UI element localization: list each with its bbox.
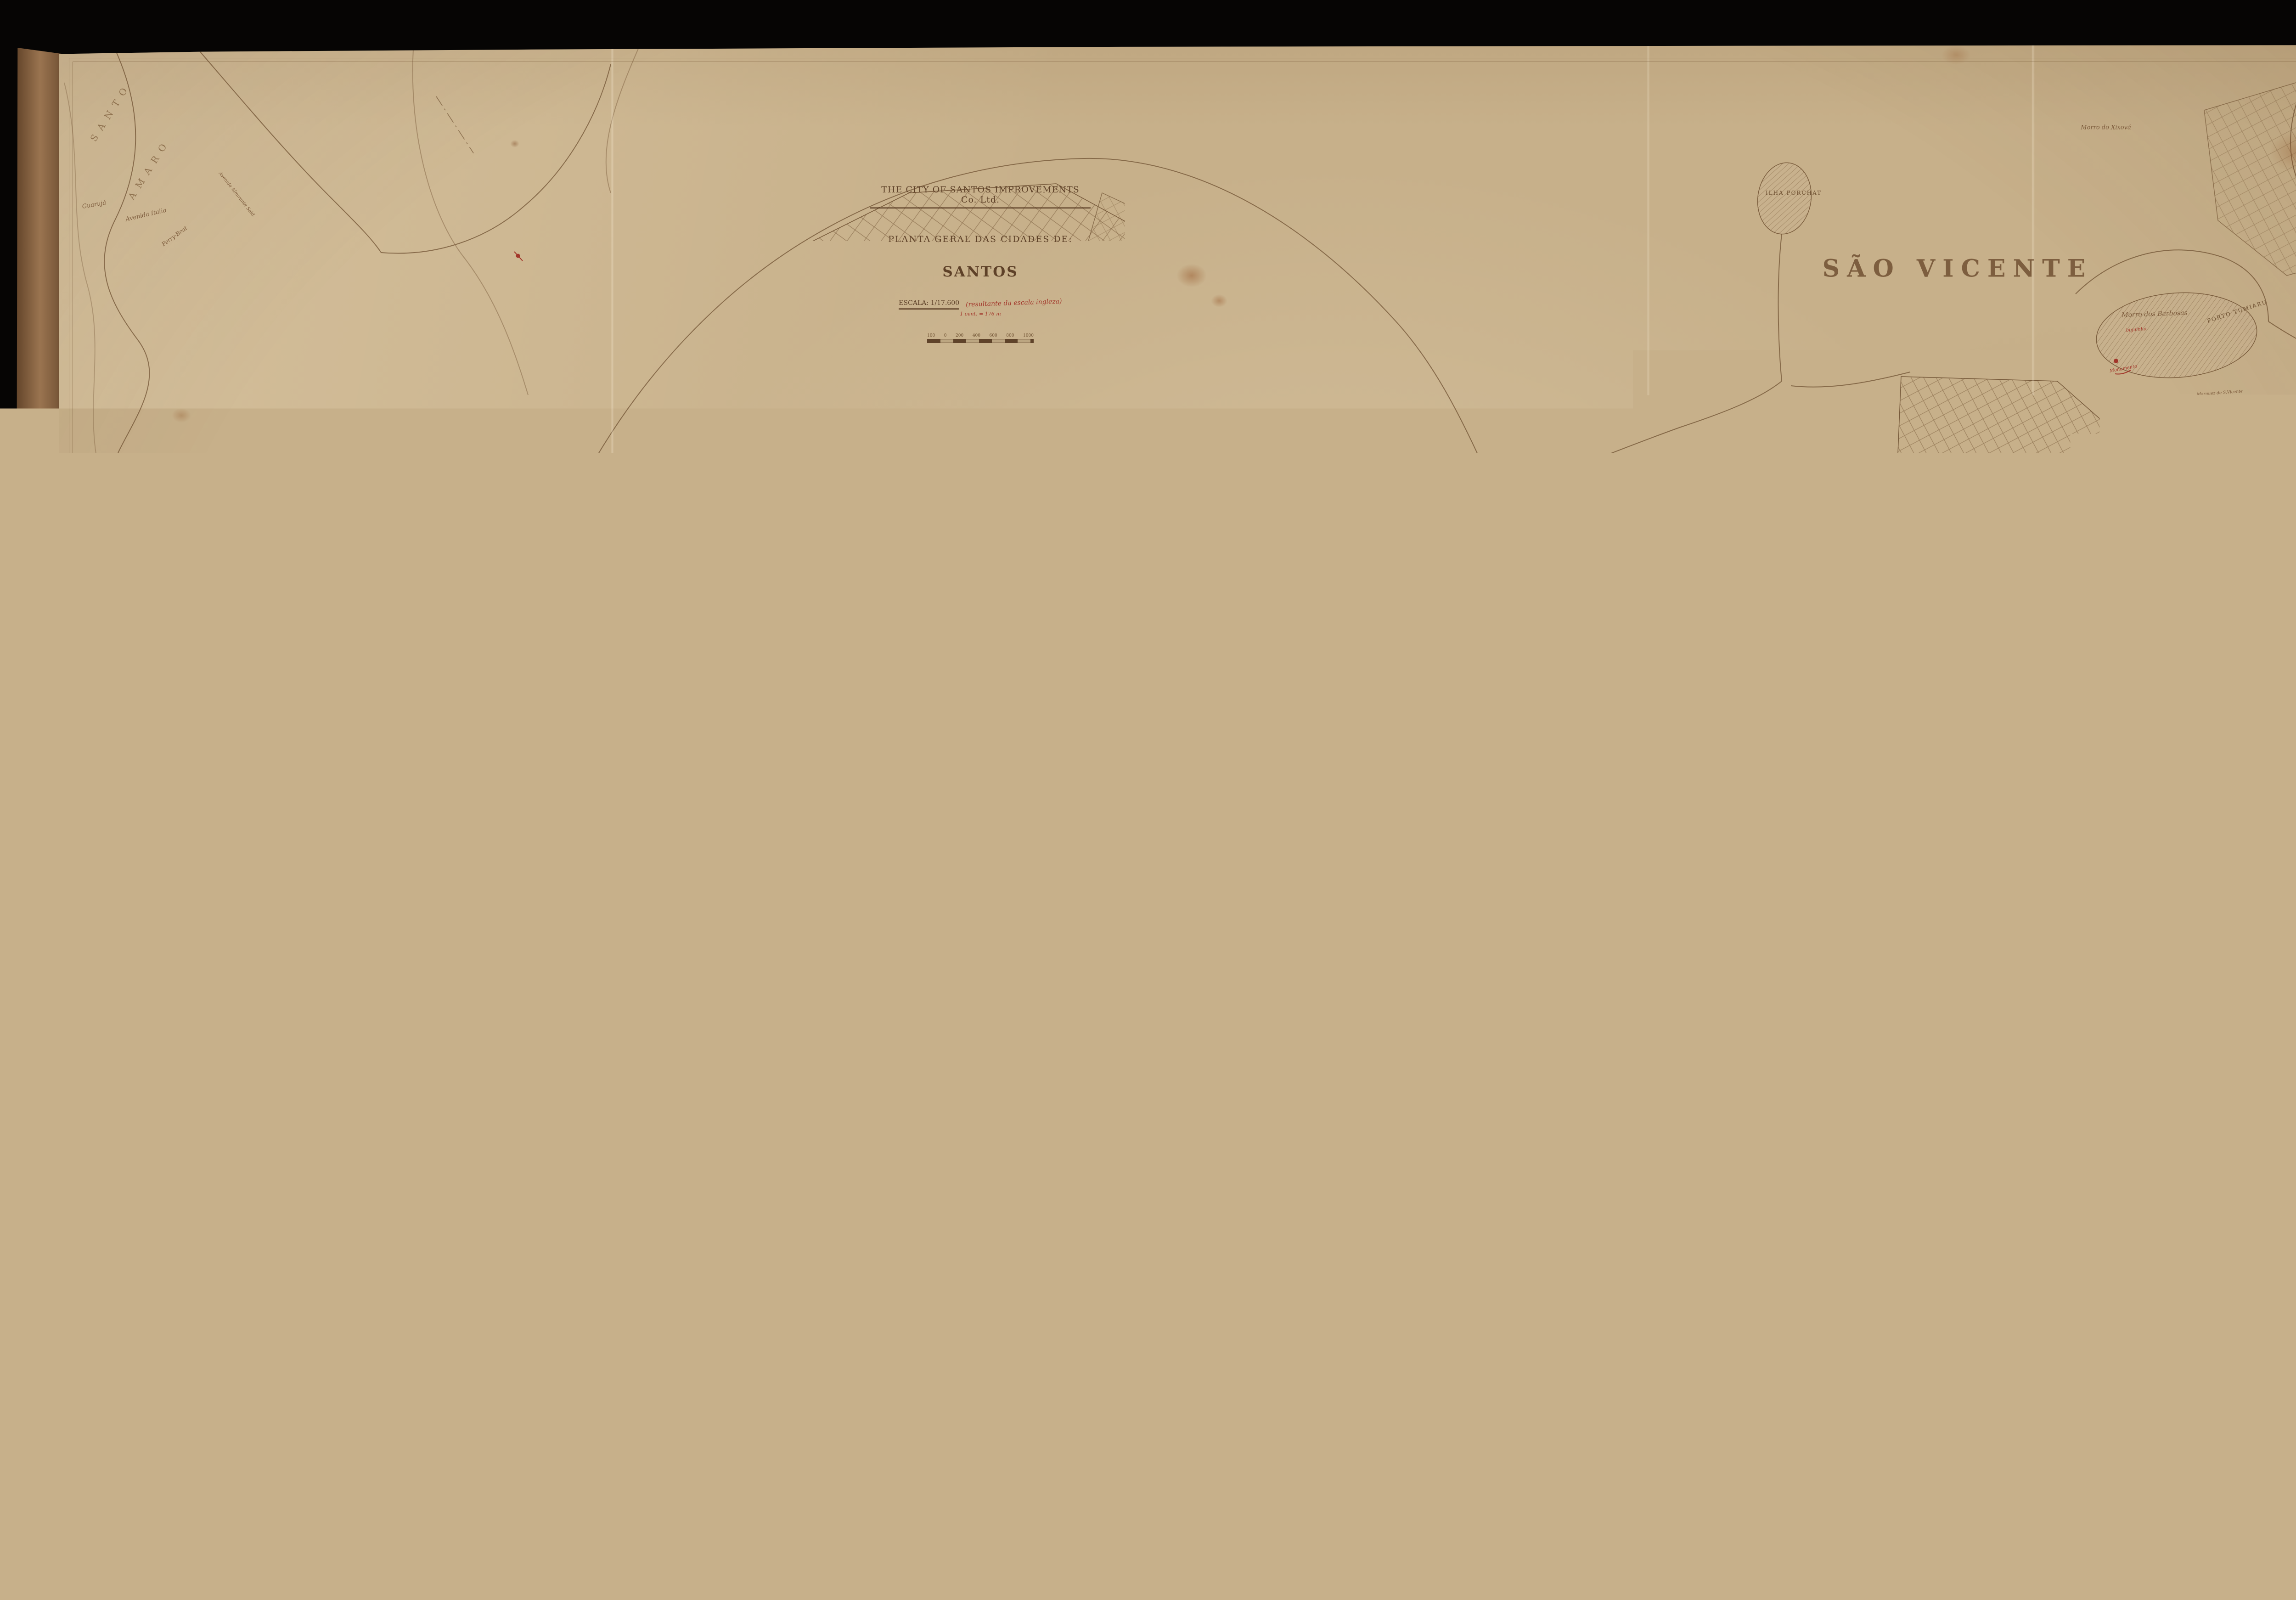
legend-title: PRAÇAS E LARGOS EM S.VICENTE [2053,590,2250,616]
street-grids [542,69,2296,1534]
legend-row: XVIIIndependencia [2053,975,2255,987]
compass-rose [110,855,231,991]
legend-row: II22 de Janeiro [2053,644,2250,661]
legend-row: XXCandido Gaffrée [2053,1013,2255,1025]
legend-row: VIBarão do Rio Branco [2053,712,2250,729]
legend-row: VICorrêa de Mello [2053,836,2255,849]
praca-marker: XII [927,1234,938,1239]
legend-row: XIThereza Christina [2053,899,2255,912]
legend-row: IXRepublica [2053,873,2255,886]
legend-row: VIIAzevedo Junior [2053,848,2255,861]
legend-name: Andradas [2089,775,2255,782]
latitude-ref: W. do Rio de Janeiro [115,1205,179,1216]
legend-name: Senador Corrêa [2089,1116,2255,1123]
legend-name: Guilherme Aralhe [2089,1192,2255,1199]
legend-numeral: V [2053,826,2089,833]
legend-name: Visconde de Mauá [2089,800,2255,807]
legend-numeral: XXXIII [2053,1179,2089,1186]
legend-name: 22 de Janeiro [2095,648,2250,657]
latitude-value: Latitude: 23°57'30" [115,1194,179,1205]
legend-numeral: IX [2053,876,2089,883]
legend-name: 7 de Setembro [2089,927,2255,934]
legend-row: XXVCoronel Fern. Prestes [2053,1076,2255,1088]
legend-row: XXXConselheiro Sinimbu [2053,1139,2255,1152]
map-city-title: SANTOS [870,264,1091,280]
legend-numeral: XXVI [2053,1091,2089,1098]
legend-numeral: III [2053,800,2089,807]
legend-numeral: XV [2053,952,2089,959]
legend-numeral: XXV [2053,1078,2089,1085]
legend-name: Visconde de Itaborahy [2089,1091,2255,1098]
legend-numeral: XIV [2053,940,2089,946]
legend-row: XIII7 de Setembro [2053,924,2255,937]
legend-name: Silverio de Souza [2089,1003,2255,1009]
catalog-code-sub: 23-12-36 G-12 [269,1511,332,1518]
legend-numeral: IV [2053,813,2089,820]
legend-numeral: XXI [2053,1028,2089,1035]
longitude-ref: Greenwich [179,1205,243,1216]
legend-name: Narciso de Andrade [2089,952,2255,959]
legend-row: VIIIBarão do Rio Branco [2053,861,2255,874]
scale-tick: 1000 [1023,333,1034,338]
legend-row: IIRuy Barbosa [2053,785,2255,798]
legend-rows: IJoão PessôaII22 de JaneiroIIIBernardino… [2053,627,2250,729]
legend-numeral: XII [2053,914,2089,921]
legend-name: Bernardino de Campos [2095,665,2250,674]
legend-numeral: XXXI [2053,1154,2089,1161]
legend-name: Benedicto Junior [2089,1028,2255,1035]
legend-numeral: XIX [2053,1003,2089,1009]
legend-row: XXIBenedicto Junior [2053,1025,2255,1038]
legend-name: Senador Vergueiro [2089,826,2255,833]
praca-marker: XXIV [545,762,560,768]
legend-name: Independencia [2089,977,2255,984]
legend-row: XVIIIWashington [2053,987,2255,1000]
legend-row: IAndradas [2053,772,2255,785]
map-label: sem constr. [920,1334,946,1340]
legend-row: IIIBernardino de Campos [2053,661,2250,678]
coordinates-row: W. do Rio de Janeiro Greenwich [115,1205,243,1216]
legend-numeral: VII [2053,851,2089,858]
legend-row: XVNarciso de Andrade [2053,949,2255,962]
legend-numeral: XIII [2053,927,2089,934]
coordinates-title: Coordenadas Geographicas [115,1179,223,1189]
legend-name: Washington [2089,990,2255,997]
scale-tick: 100 [927,333,935,338]
scale-label: ESCALA: 1/17.600 [899,299,959,310]
legend-numeral: XXX [2053,1142,2089,1149]
legend-name: Coronel Lopes [2095,682,2250,691]
legend-numeral: V [2053,699,2095,708]
archive-caption: Arquivo Público do Estado de São Paulo -… [12,1554,607,1578]
scale-tick: 600 [990,333,997,338]
legend-row: XAntonio Telles [2053,886,2255,899]
scale-row: ESCALA: 1/17.600 (resultante da escala i… [870,299,1091,310]
sao-vicente-title: SÃO VICENTE [1823,255,2093,283]
legend-row: IVMarquez de Monte Alegre [2053,811,2255,823]
map-sheet: SÃO VICENTES A N T OA M A R OE S T U A R… [59,45,2296,1541]
legend-name: Ruy Barbosa [2089,788,2255,795]
legend-name: José Bonifacio [2089,914,2255,921]
scale-tick: 800 [1006,333,1014,338]
portfolio-binding-edge [14,48,62,1542]
legend-numeral: III [2053,665,2095,674]
legend-row: XIVIguatemy Martins [2053,937,2255,950]
legend-row: VThomé de Souza [2053,695,2250,712]
legend-name: Belmiro Ribeiro [2089,965,2255,972]
legend-name: Barão do Rio Branco [2089,864,2255,871]
legend-name: Thereza Christina [2089,901,2255,908]
map-company-title: THE CITY OF SANTOS IMPROVEMENTS Co. Ltd. [870,185,1091,208]
legend-name: Visconde de Ouro Preto [2089,1104,2255,1110]
legend-row: IJoão Pessôa [2053,627,2250,644]
legend-row: XXVIVisconde de Itaborahy [2053,1088,2255,1101]
map-label: Morro do Xixová [2081,124,2131,131]
legend-numeral: XXXII [2053,1167,2089,1174]
legend-numeral: VI [2053,716,2095,725]
legend-row: IVCoronel Lopes [2053,678,2250,695]
legend-row: XXXIVGuilherme Aralhe [2053,1189,2255,1202]
legend-name: Antonio Telles [2089,889,2255,896]
legend-numeral: XXVIII [2053,1116,2089,1123]
legend-numeral: XVIII [2053,990,2089,997]
legend-row: IIIVisconde de Mauá [2053,798,2255,811]
legend-name: José Dominguez Martins [2089,1129,2255,1136]
legend-numeral: XX [2053,1015,2089,1022]
legend-name: Marquez de Monte Alegre [2089,813,2255,820]
scale-note-hand: 1 cent. = 176 m [870,311,1091,317]
legend-name: Padre Manoel da Nobrega [2089,1053,2255,1060]
praca-marker: XIV [879,1172,886,1176]
scale-tick: 0 [944,333,947,338]
legend-name: Iguatemy Martins [2089,940,2255,946]
declination-value: Declinação maxima do Sol 23°27' [115,1216,243,1227]
legend-numeral: XXVII [2053,1104,2089,1110]
legend-name: Corrêa de Mello [2089,839,2255,845]
compass-e: E [104,935,113,940]
legend-row: XXIIIPadre Manoel da Nobrega [2053,1050,2255,1063]
legend-numeral: XXIX [2053,1129,2089,1136]
legend-numeral: IV [2053,682,2095,691]
legend-name: Coronel Fern. Prestes [2089,1078,2255,1085]
legend-numeral: XXII [2053,1041,2089,1048]
legend-row: XIXSilverio de Souza [2053,1000,2255,1013]
legend-numeral: I [2053,775,2089,782]
legend-numeral: XXIII [2053,1053,2089,1060]
map-label: ILHA URUBUQUEÇABA [1356,411,1452,418]
rivers [1580,487,2034,1228]
photo-backdrop: SÃO VICENTES A N T OA M A R OE S T U A R… [0,0,2296,1600]
longitude-value: Long.e 46°24' de [179,1194,243,1205]
legend-name: Benedicto Calixto [2089,1154,2255,1161]
legend-name: Palmares [2089,1066,2255,1073]
map-subtitle: PLANTA GERAL DAS CIDADES DE: [870,234,1091,244]
map-label: Canal N.1 [1317,478,1322,501]
scale-note-red: (resultante da escala ingleza) [966,298,1062,308]
legend-numeral: XI [2053,901,2089,908]
legend-name: Conselheiro Sinimbu [2089,1142,2255,1149]
scale-bar: 10002004006008001000 [927,333,1034,343]
legend-numeral: X [2053,889,2089,896]
map-label: BOCAINA [512,1460,548,1468]
legend-row: XXVIIISenador Corrêa [2053,1114,2255,1127]
catalog-code: P.G. 503 [252,1487,349,1509]
legend-row: XXIIFernandes Pacheco [2053,1038,2255,1051]
legend-name: Candido Gaffrée [2089,1015,2255,1022]
legend-name: Thomé de Souza [2095,699,2250,708]
scale-bar-ticks: 10002004006008001000 [927,333,1034,338]
scale-tick: 400 [973,333,980,338]
legend-row: XXXIISaudade [2053,1164,2255,1177]
legend-numeral: II [2053,648,2095,657]
map-label: ILHA PORCHAT [1766,190,1822,196]
legend-numeral: I [2053,631,2095,640]
legend-numeral: XXIV [2053,1066,2089,1073]
title-block: THE CITY OF SANTOS IMPROVEMENTS Co. Ltd.… [870,185,1091,343]
legend-numeral: XVII [2053,977,2089,984]
legend-row: XVIBelmiro Ribeiro [2053,962,2255,975]
legend-numeral: XVI [2053,965,2089,972]
legend-row: XXVIIVisconde de Ouro Preto [2053,1101,2255,1114]
legend-row: XXIVPalmares [2053,1063,2255,1076]
legend-name: Saudade [2089,1167,2255,1174]
legend-pracas-santos: PRAÇAS E LARGOS EM SANTOS IAndradasIIRuy… [2053,751,2255,1202]
map-canvas: SÃO VICENTES A N T OA M A R OE S T U A R… [59,45,2296,1541]
legend-name: Azevedo Junior [2089,851,2255,858]
legend-numeral: II [2053,788,2089,795]
legend-row: XXIXJosé Dominguez Martins [2053,1126,2255,1139]
legend-name: Barão do Rio Branco [2095,716,2250,725]
scale-bar-segments [927,339,1034,343]
catalog-stamp: P.G. 503 23-12-36 G-12 [252,1487,349,1518]
legend-name: João Barbalho [2089,1179,2255,1186]
legend-numeral: VIII [2053,864,2089,871]
legend-rows: IAndradasIIRuy BarbosaIIIVisconde de Mau… [2053,772,2255,1202]
legend-title: PRAÇAS E LARGOS EM SANTOS [2053,751,2243,766]
legend-name: João Pessôa [2095,631,2250,640]
legend-name: Fernandes Pacheco [2089,1041,2255,1048]
coordinates-box: Coordenadas Geographicas Latitude: 23°57… [104,1170,254,1249]
scale-tick: 200 [956,333,963,338]
legend-row: XIIJosé Bonifacio [2053,912,2255,924]
legend-name: Republica [2089,876,2255,883]
legend-row: VSenador Vergueiro [2053,823,2255,836]
legend-row: XXXIBenedicto Calixto [2053,1151,2255,1164]
legend-row: XXXIIIJoão Barbalho [2053,1177,2255,1189]
coordinates-row: Latitude: 23°57'30" Long.e 46°24' de [115,1194,243,1205]
legend-numeral: VI [2053,839,2089,845]
legend-numeral: XXXIV [2053,1192,2089,1199]
legend-pracas-sao-vicente: PRAÇAS E LARGOS EM S.VICENTE IJoão Pessô… [2053,590,2250,729]
